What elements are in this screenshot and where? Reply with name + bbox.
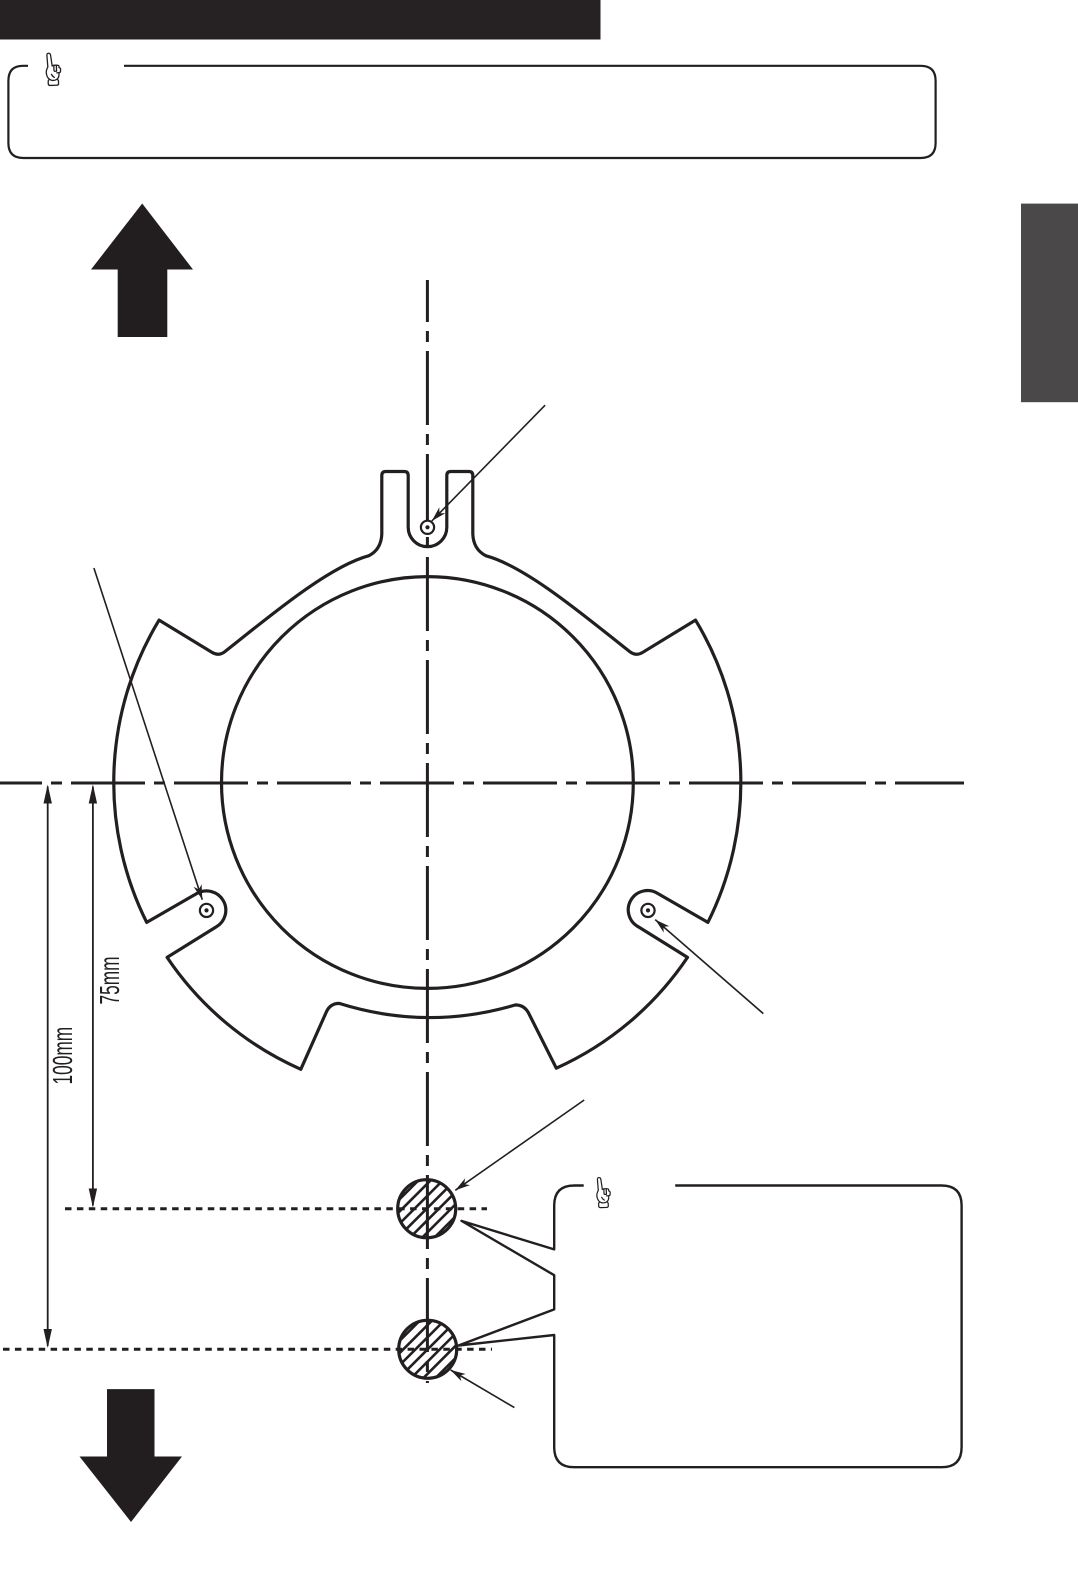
svg-text:75mm: 75mm <box>94 956 125 1004</box>
svg-text:100mm: 100mm <box>47 1027 78 1085</box>
